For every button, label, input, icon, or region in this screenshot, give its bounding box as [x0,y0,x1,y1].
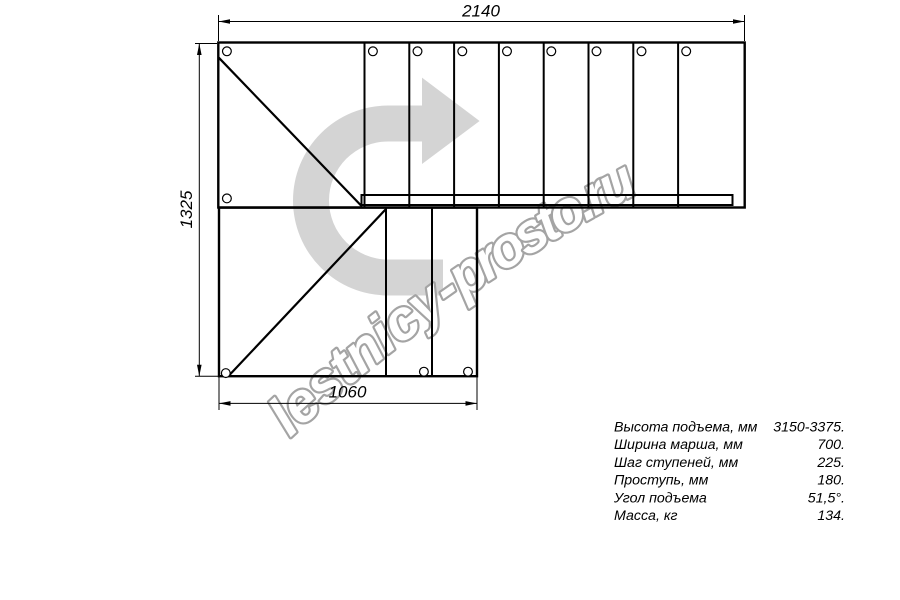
svg-text:700.: 700. [817,437,845,453]
svg-text:Ширина марша, мм: Ширина марша, мм [614,437,743,453]
svg-text:Высота подъема, мм: Высота подъема, мм [614,420,758,436]
svg-text:3150-3375.: 3150-3375. [773,420,845,436]
svg-text:1060: 1060 [329,383,367,402]
svg-text:180.: 180. [817,473,845,489]
svg-text:1325: 1325 [177,190,196,228]
svg-text:Проступь, мм: Проступь, мм [614,473,709,489]
svg-text:134.: 134. [817,508,845,524]
svg-text:Шаг ступеней, мм: Шаг ступеней, мм [614,455,738,471]
svg-text:2140: 2140 [461,2,500,21]
svg-text:Угол подъема: Угол подъема [613,490,707,506]
svg-text:225.: 225. [816,455,845,471]
svg-text:51,5°.: 51,5°. [808,490,845,506]
svg-text:Масса, кг: Масса, кг [614,508,678,524]
